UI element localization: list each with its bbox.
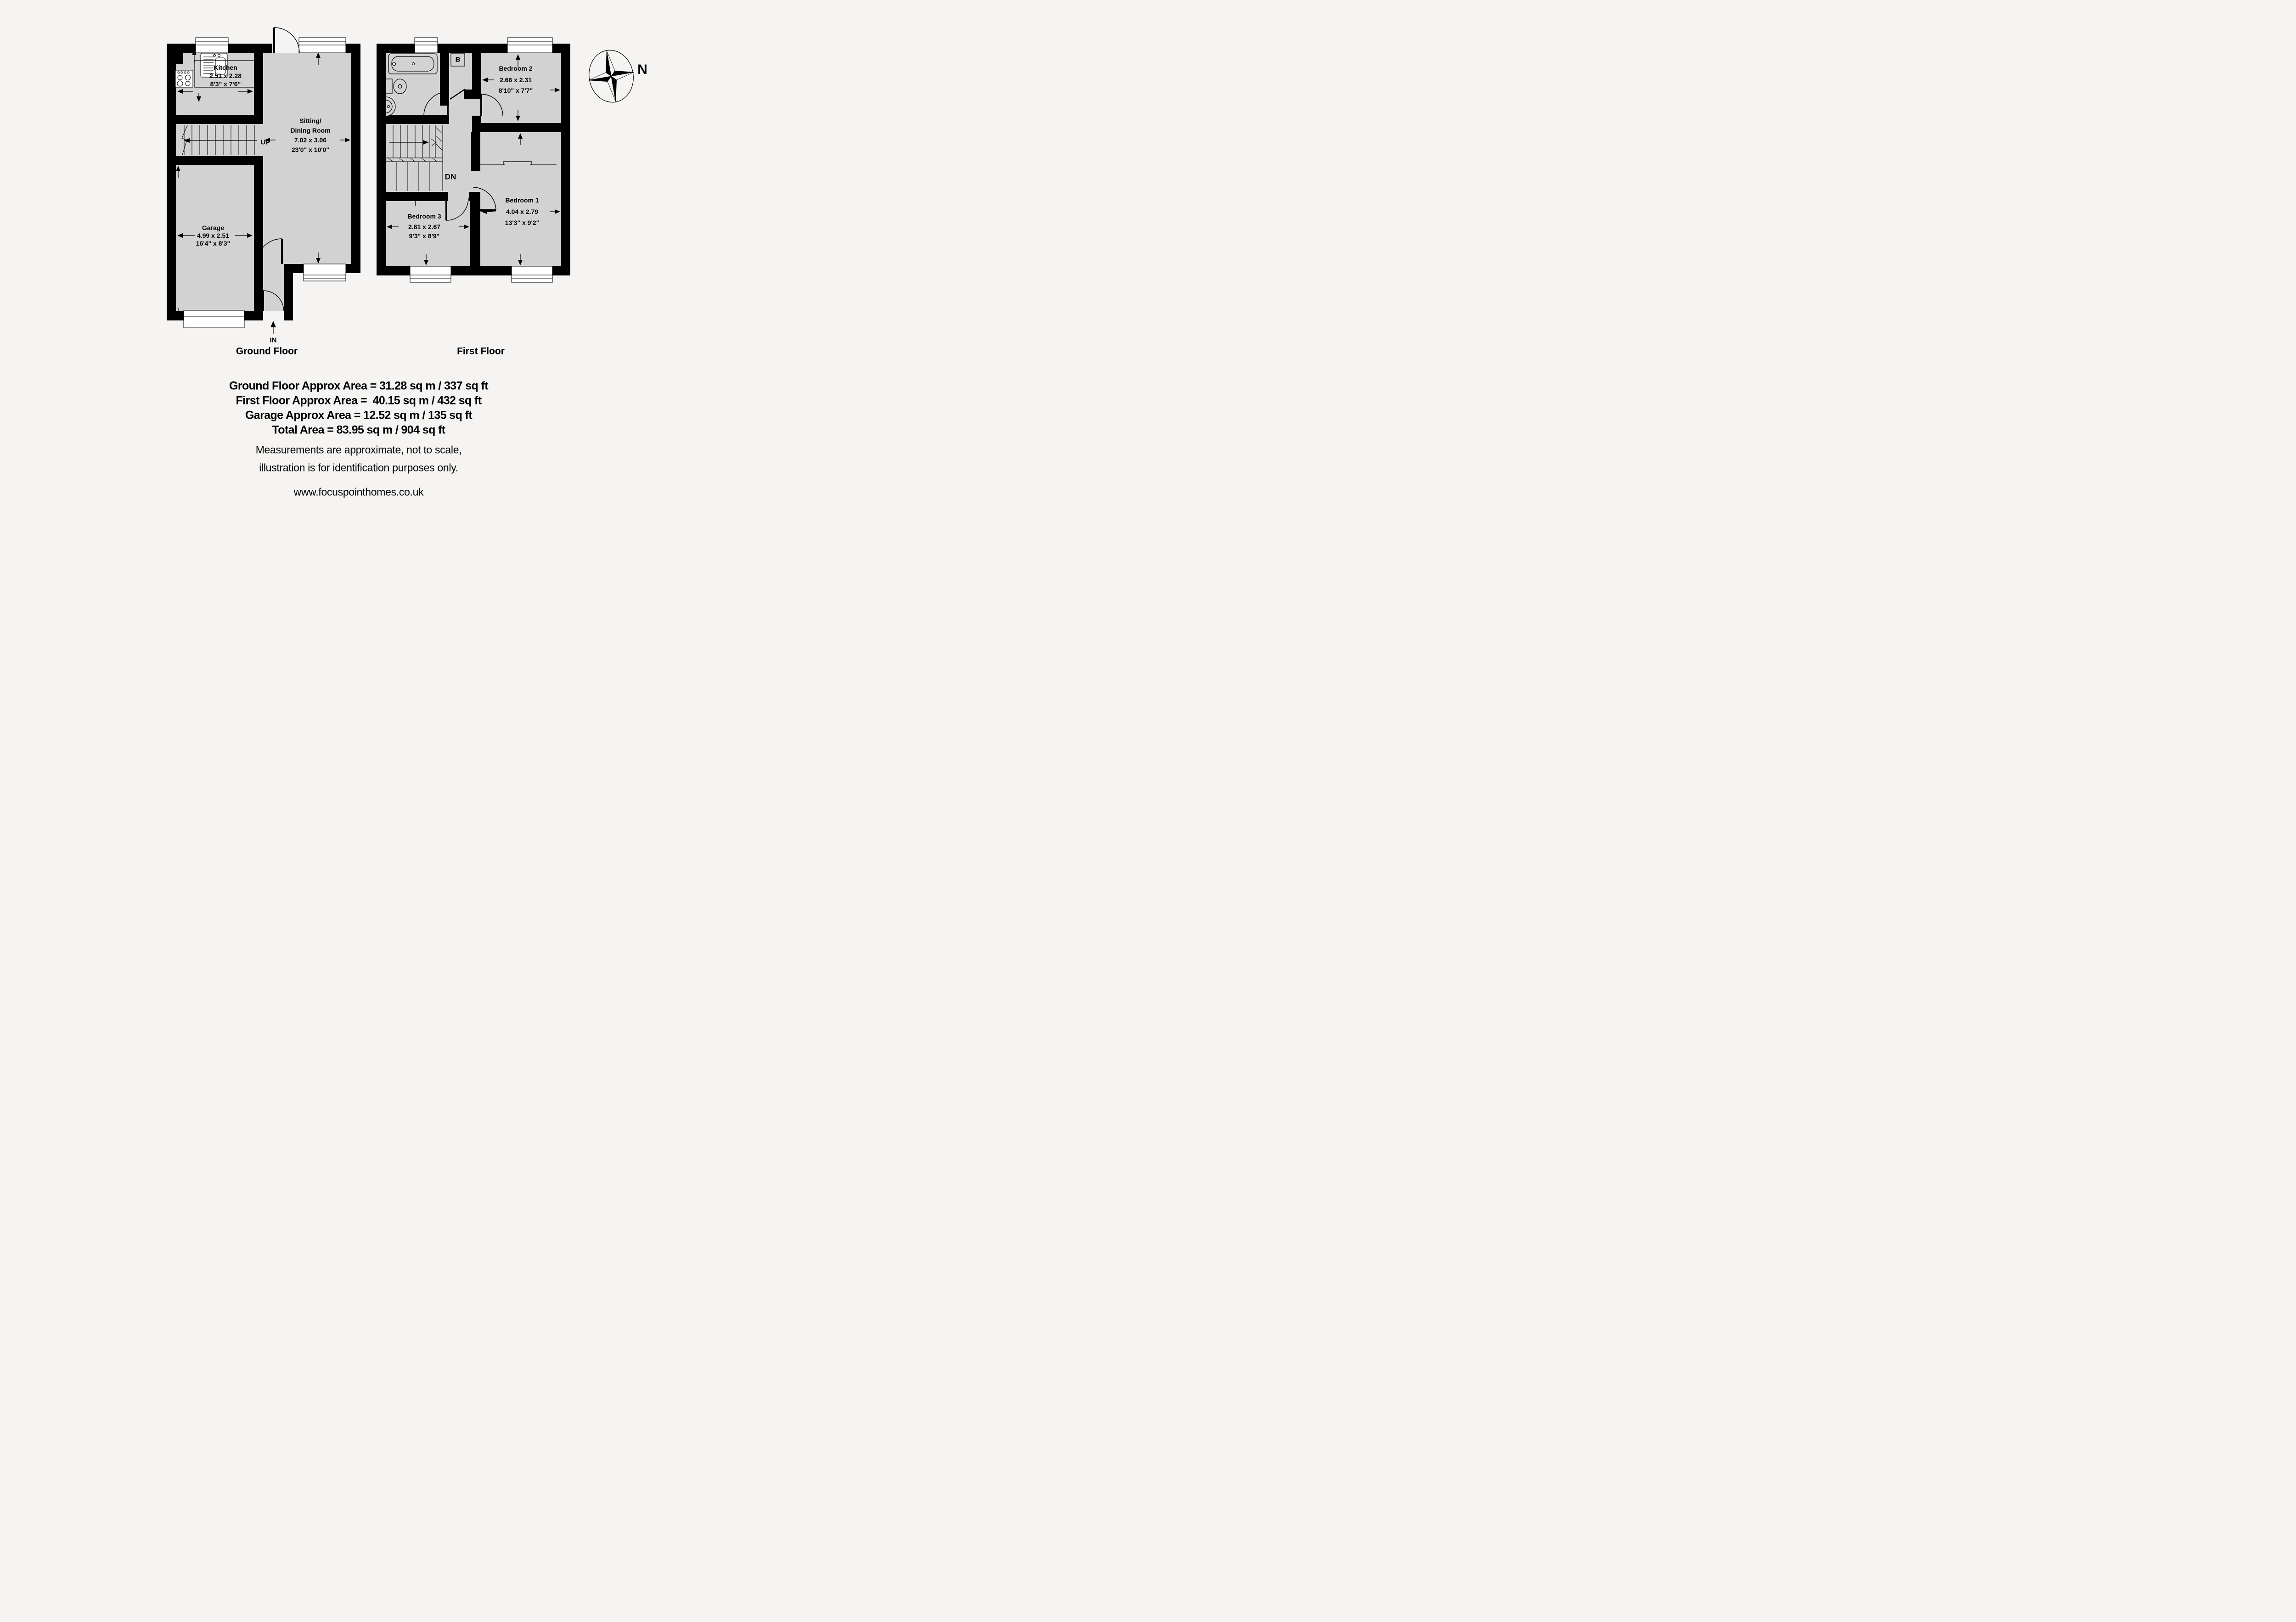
sitting-room-label-2: Dining Room (290, 127, 330, 134)
floorplan-page: Kitchen 2.51 x 2.28 8'3" x 7'6" Sitting/… (0, 0, 717, 507)
bedroom3-window (410, 266, 451, 282)
ground-floor-plan (167, 28, 360, 334)
north-label: N (637, 63, 647, 77)
compass-rose-icon (584, 46, 638, 106)
garage-metric: 4.99 x 2.51 (197, 232, 229, 239)
bedroom2-label: Bedroom 2 (499, 65, 532, 72)
sitting-room-metric: 7.02 x 3.06 (294, 137, 326, 143)
bedroom1-label: Bedroom 1 (505, 197, 539, 203)
area-total: Total Area = 83.95 sq m / 904 sq ft (272, 425, 445, 436)
stairs-up-label: UP (261, 139, 270, 146)
garage-door (184, 310, 244, 328)
sitting-room-label-1: Sitting/ (299, 118, 321, 124)
kitchen-imperial: 8'3" x 7'6" (210, 81, 241, 87)
hall-floor (263, 264, 284, 311)
sitting-room-floor (263, 53, 351, 264)
bedroom1-metric: 4.04 x 2.79 (506, 208, 538, 215)
hob-icon (175, 70, 193, 87)
area-ground-floor: Ground Floor Approx Area = 31.28 sq m / … (229, 381, 488, 392)
kitchen-metric: 2.51 x 2.28 (209, 73, 242, 79)
first-floor-plan (377, 38, 570, 282)
bedroom3-metric: 2.81 x 2.67 (408, 224, 440, 230)
garage-imperial: 16'4" x 8'3" (196, 240, 230, 247)
sitting-room-imperial: 23'0" x 10'0" (292, 146, 329, 153)
ground-floor-title: Ground Floor (236, 347, 298, 356)
bedroom3-label: Bedroom 3 (407, 213, 441, 219)
bathtub-icon (388, 54, 437, 74)
bedroom2-imperial: 8'10" x 7'7" (499, 87, 533, 94)
bedroom1-window (512, 266, 552, 282)
stairs-down-label: DN (445, 173, 456, 181)
bedroom3-imperial: 9'3" x 8'9" (409, 233, 440, 239)
first-floor-title: First Floor (457, 347, 505, 356)
website-url: www.focuspointhomes.co.uk (294, 487, 424, 498)
entrance-in-label: IN (270, 337, 277, 344)
disclaimer-line-1: Measurements are approximate, not to sca… (256, 445, 462, 455)
bedroom1-imperial: 13'3" x 9'2" (505, 219, 539, 226)
disclaimer-line-2: illustration is for identification purpo… (259, 463, 458, 473)
area-first-floor: First Floor Approx Area = 40.15 sq m / 4… (236, 395, 482, 407)
bedroom2-metric: 2.68 x 2.31 (500, 77, 532, 83)
kitchen-label: Kitchen (214, 64, 237, 71)
area-garage: Garage Approx Area = 12.52 sq m / 135 sq… (245, 410, 472, 421)
toilet-icon (386, 79, 406, 94)
garage-label: Garage (202, 224, 224, 231)
boiler-label: B (456, 56, 461, 63)
